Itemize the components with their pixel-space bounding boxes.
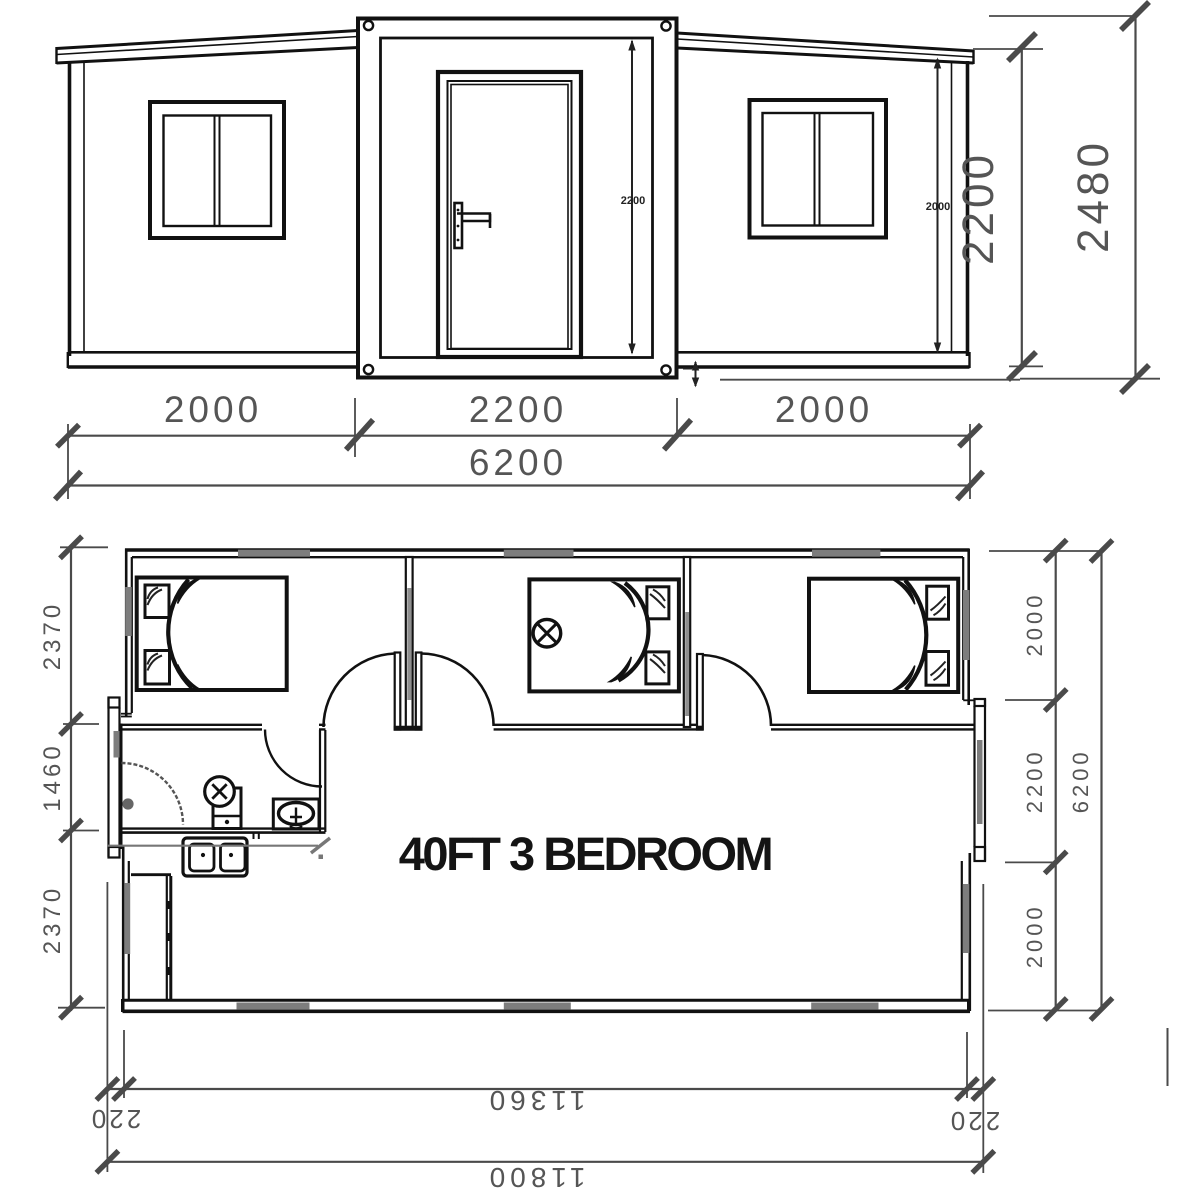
svg-text:2370: 2370 xyxy=(39,601,66,670)
svg-text:6200: 6200 xyxy=(1068,748,1093,813)
svg-text:2000: 2000 xyxy=(1022,592,1047,657)
svg-text:2370: 2370 xyxy=(39,885,66,954)
svg-text:40FT 3 BEDROOM: 40FT 3 BEDROOM xyxy=(399,827,771,880)
svg-text:2000: 2000 xyxy=(926,201,950,213)
svg-text:1460: 1460 xyxy=(39,742,66,811)
svg-text:2200: 2200 xyxy=(1022,748,1047,813)
svg-text:6200: 6200 xyxy=(469,442,567,483)
svg-text:2200: 2200 xyxy=(469,389,567,430)
svg-text:2480: 2480 xyxy=(1069,139,1118,253)
svg-text:2200: 2200 xyxy=(621,195,645,207)
svg-text:2000: 2000 xyxy=(775,389,873,430)
svg-text:2200: 2200 xyxy=(954,151,1003,265)
svg-text:2000: 2000 xyxy=(1022,903,1047,968)
svg-text:2000: 2000 xyxy=(164,389,262,430)
